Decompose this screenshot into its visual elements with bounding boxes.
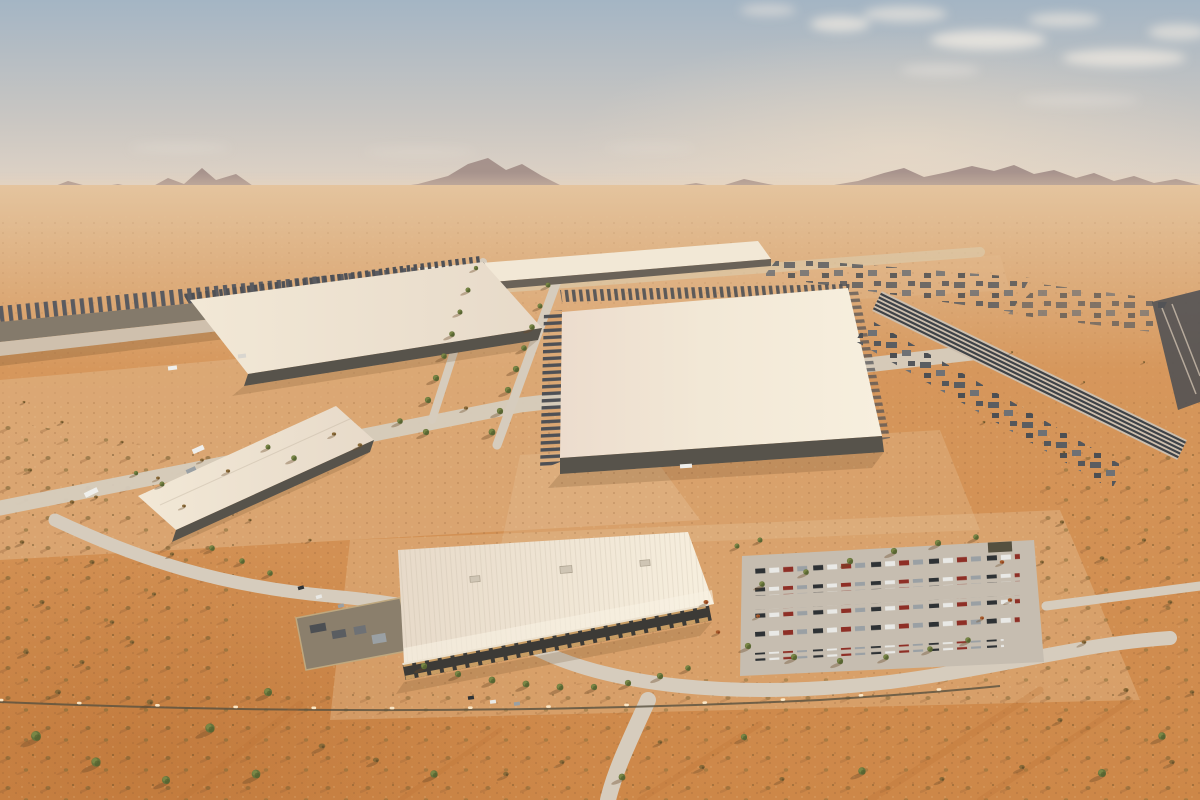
rooftop-unit	[640, 560, 650, 567]
rooftop-unit	[470, 576, 480, 583]
scene-canvas	[0, 0, 1200, 800]
data-hall-central	[540, 284, 890, 488]
data-hall-roof	[560, 288, 882, 458]
aerial-render-desert-datacenter-campus	[0, 0, 1200, 800]
shade-canopy	[988, 541, 1012, 552]
truck	[680, 464, 692, 469]
rooftop-unit	[560, 566, 572, 574]
parking-lot	[740, 540, 1044, 676]
